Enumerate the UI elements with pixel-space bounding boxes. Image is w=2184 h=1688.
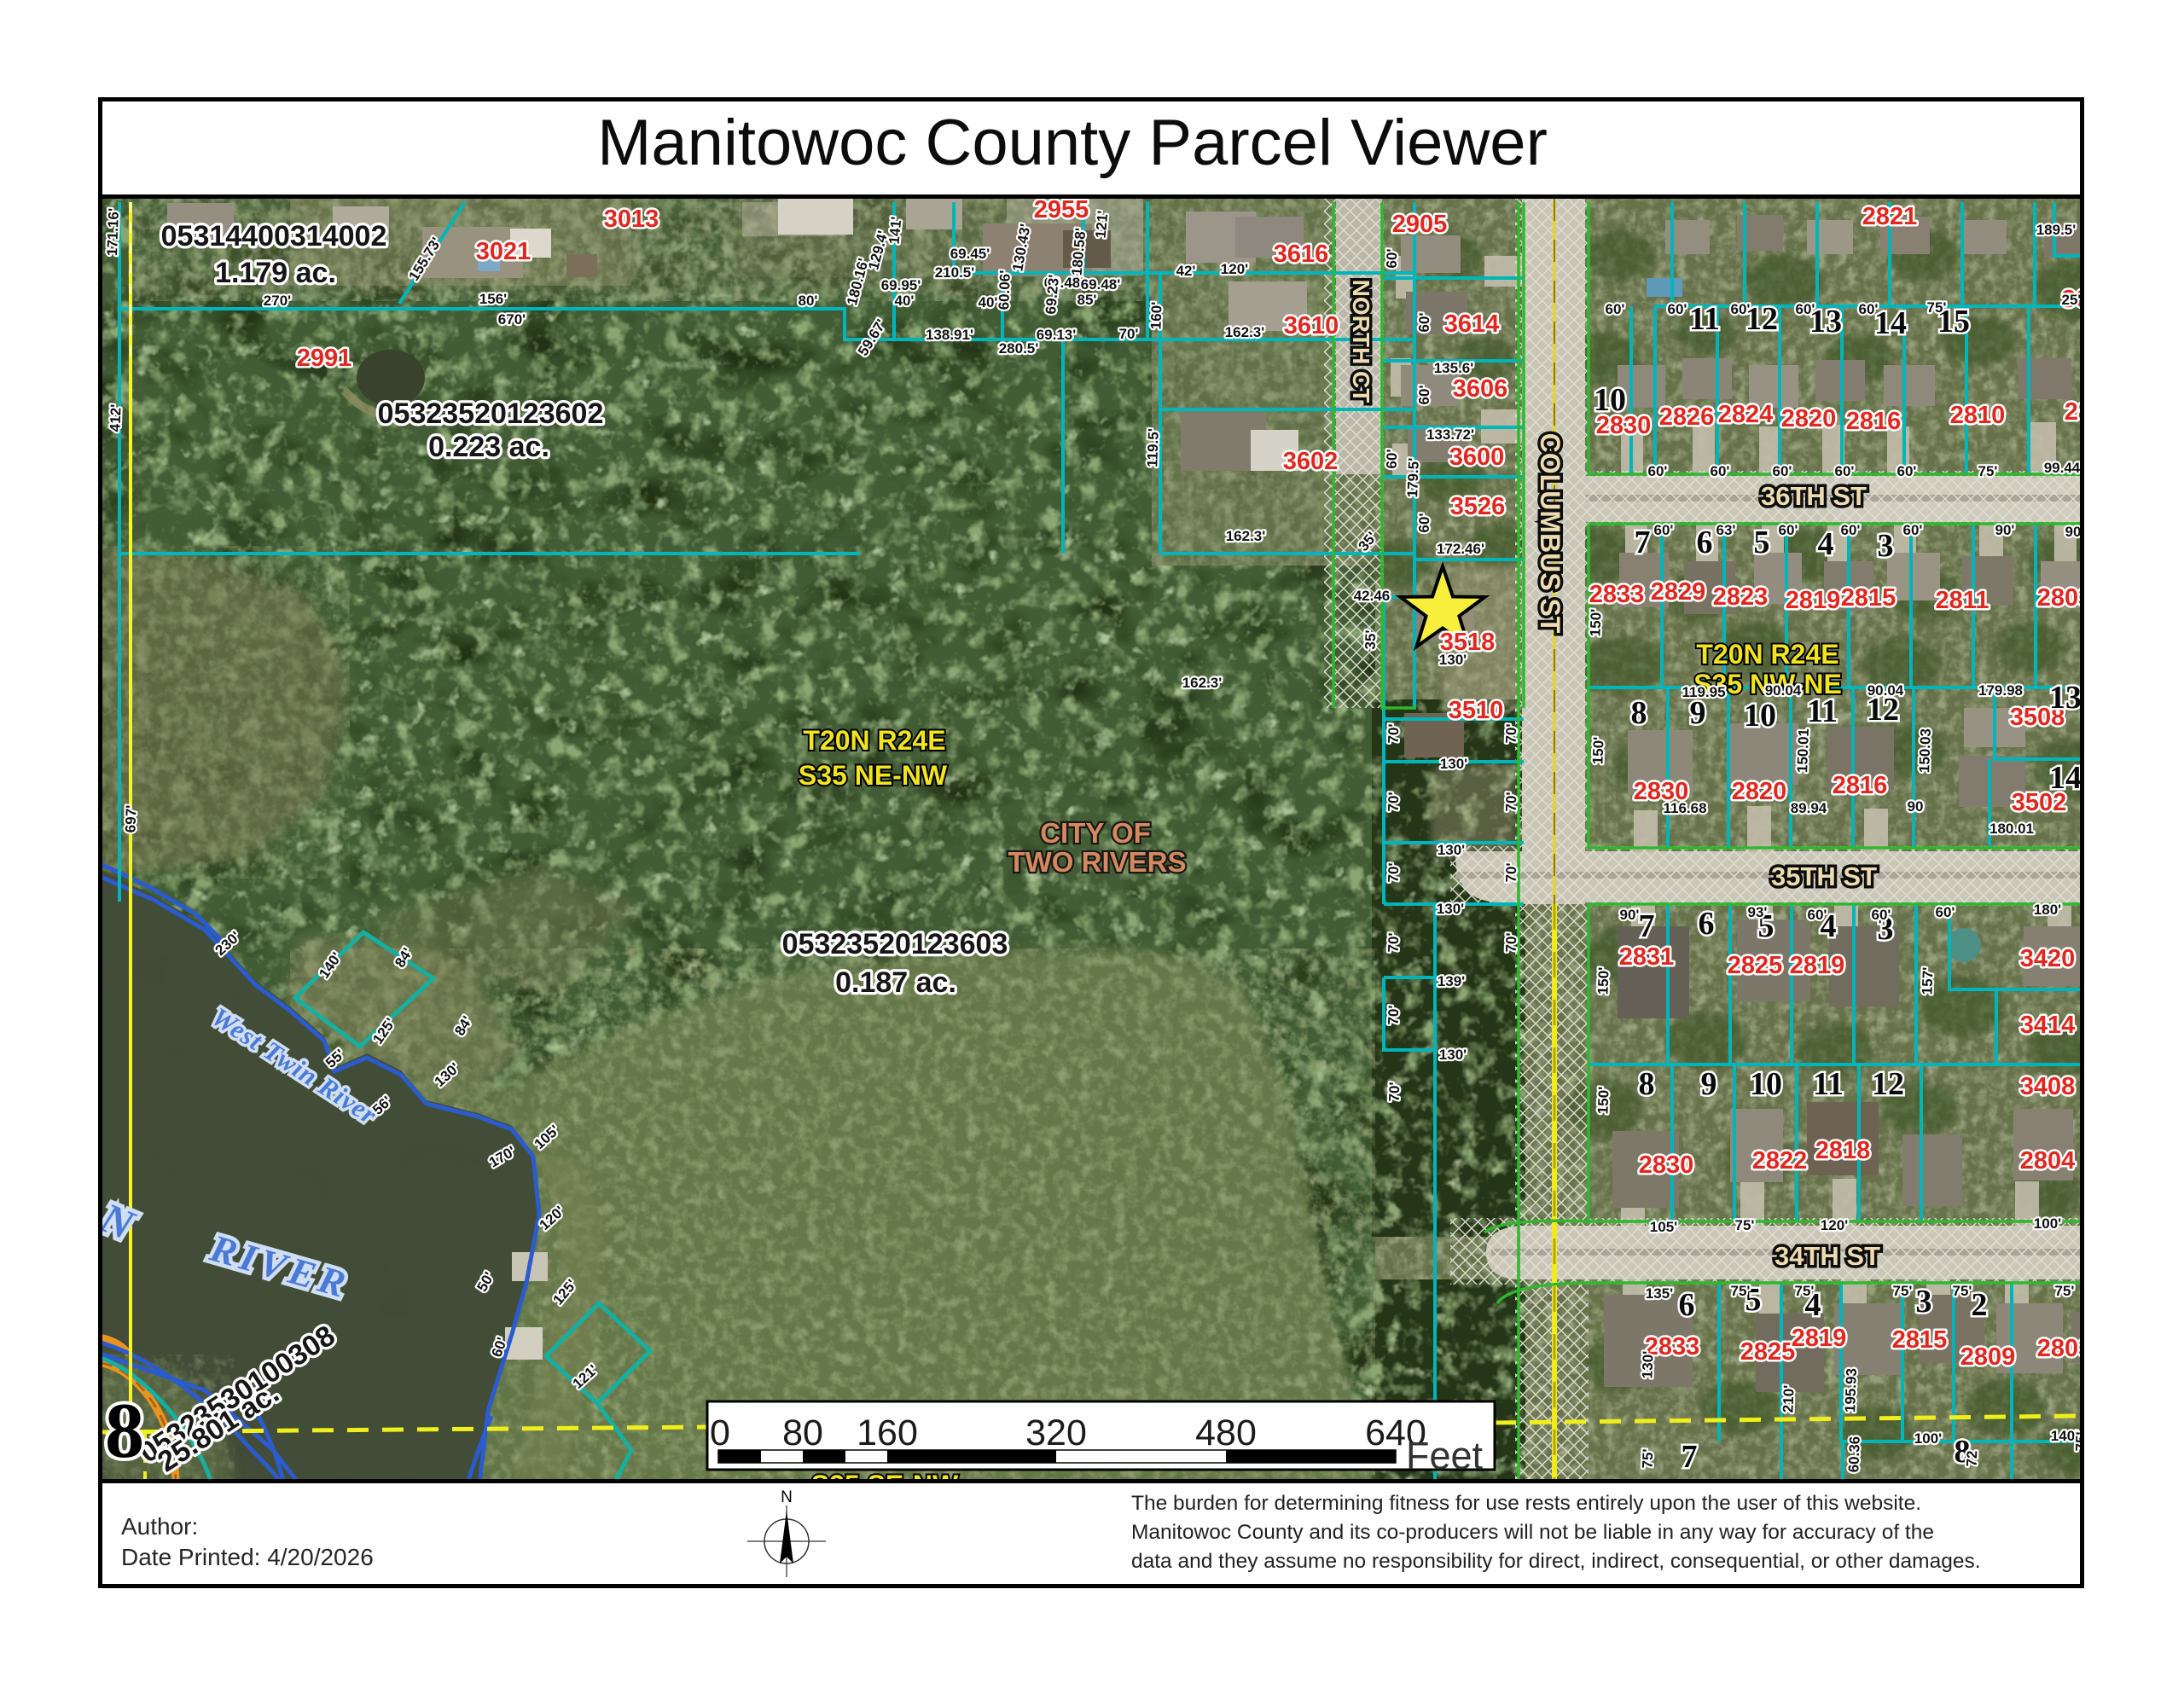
svg-text:150': 150' <box>1589 737 1606 765</box>
svg-text:0.187 ac.: 0.187 ac. <box>835 966 956 999</box>
svg-text:60': 60' <box>1711 463 1730 479</box>
svg-text:120': 120' <box>1821 1217 1848 1233</box>
svg-text:162.3': 162.3' <box>1226 528 1266 544</box>
svg-text:75': 75' <box>1795 1283 1815 1299</box>
svg-text:90.04: 90.04 <box>1867 682 1904 699</box>
svg-text:99.44': 99.44' <box>2044 460 2080 476</box>
svg-text:130': 130' <box>1437 901 1464 917</box>
svg-text:9: 9 <box>1690 695 1706 731</box>
svg-text:60': 60' <box>1606 301 1625 317</box>
svg-text:60': 60' <box>1416 312 1433 333</box>
svg-text:135.6': 135.6' <box>1434 360 1474 376</box>
svg-text:130': 130' <box>1438 842 1465 858</box>
svg-text:2815: 2815 <box>1841 584 1896 612</box>
svg-text:60': 60' <box>1841 522 1861 538</box>
svg-text:40': 40' <box>979 294 998 310</box>
svg-text:36TH ST: 36TH ST <box>1761 481 1867 511</box>
svg-text:2819: 2819 <box>1792 1325 1847 1352</box>
svg-text:13: 13 <box>2049 680 2080 716</box>
svg-text:3013: 3013 <box>604 206 659 233</box>
svg-text:75': 75' <box>1893 1283 1913 1299</box>
svg-text:105': 105' <box>1650 1219 1677 1235</box>
svg-text:8: 8 <box>1639 1066 1655 1102</box>
svg-text:75': 75' <box>1953 1283 1972 1299</box>
svg-text:2819: 2819 <box>1790 952 1845 979</box>
svg-text:6: 6 <box>1679 1287 1695 1323</box>
svg-text:180.01: 180.01 <box>1989 821 2034 837</box>
svg-text:2823: 2823 <box>1713 583 1769 611</box>
svg-text:6: 6 <box>1699 906 1715 942</box>
svg-text:80: 80 <box>782 1412 823 1453</box>
svg-text:2816: 2816 <box>1833 772 1888 799</box>
svg-text:2811: 2811 <box>1936 587 1989 614</box>
svg-text:412': 412' <box>107 404 124 432</box>
svg-text:05323520123603: 05323520123603 <box>782 928 1008 960</box>
svg-text:119.95: 119.95 <box>1682 684 1725 700</box>
svg-text:5: 5 <box>1754 525 1770 560</box>
svg-text:3510: 3510 <box>1449 697 1504 724</box>
svg-text:69.13': 69.13' <box>1037 327 1077 343</box>
svg-text:130': 130' <box>1639 1351 1656 1379</box>
svg-text:70': 70' <box>1503 932 1520 953</box>
svg-text:3: 3 <box>1916 1284 1932 1320</box>
svg-text:63': 63' <box>1716 522 1736 538</box>
svg-text:69.48': 69.48' <box>1081 276 1121 293</box>
svg-text:3420: 3420 <box>2020 945 2076 972</box>
svg-text:2825: 2825 <box>1728 952 1783 979</box>
svg-text:70': 70' <box>1385 723 1403 744</box>
svg-text:150.01: 150.01 <box>1794 728 1812 774</box>
svg-text:3610: 3610 <box>1284 312 1339 339</box>
svg-text:S35 SE-NW: S35 SE-NW <box>811 1470 959 1483</box>
svg-text:60': 60' <box>1416 385 1433 405</box>
svg-text:70': 70' <box>1503 792 1520 812</box>
svg-text:2809: 2809 <box>1960 1343 2016 1371</box>
svg-text:2803: 2803 <box>2037 584 2080 612</box>
svg-text:34TH ST: 34TH ST <box>1774 1241 1880 1271</box>
svg-text:70': 70' <box>1503 723 1520 744</box>
svg-text:2806: 2806 <box>2065 398 2080 426</box>
svg-text:320: 320 <box>1025 1412 1087 1453</box>
svg-text:4: 4 <box>1818 526 1834 562</box>
svg-text:2830: 2830 <box>1639 1151 1694 1179</box>
svg-text:7: 7 <box>1682 1439 1698 1475</box>
svg-text:90': 90' <box>2065 524 2080 540</box>
svg-text:75': 75' <box>2073 1431 2080 1452</box>
svg-text:179.5': 179.5' <box>1404 457 1422 497</box>
svg-text:2818: 2818 <box>1815 1137 1871 1164</box>
svg-text:133.72': 133.72' <box>1426 426 1474 443</box>
svg-text:3602: 3602 <box>1283 448 1339 475</box>
svg-text:75': 75' <box>1640 1448 1657 1469</box>
svg-text:S35 NE-NW: S35 NE-NW <box>799 760 948 791</box>
svg-text:14: 14 <box>1874 305 1907 341</box>
svg-text:70': 70' <box>1385 792 1403 812</box>
svg-text:70': 70' <box>1385 932 1403 953</box>
svg-text:160: 160 <box>857 1412 918 1453</box>
svg-text:100': 100' <box>1914 1430 1942 1447</box>
svg-text:05314400314002: 05314400314002 <box>161 220 387 252</box>
svg-text:130': 130' <box>1440 756 1467 772</box>
svg-text:75': 75' <box>1735 1217 1755 1233</box>
svg-text:670': 670' <box>498 311 526 328</box>
svg-text:70': 70' <box>1385 1005 1403 1025</box>
svg-text:120': 120' <box>1221 261 1248 277</box>
svg-text:160': 160' <box>1147 302 1165 330</box>
svg-text:2829: 2829 <box>1651 578 1706 606</box>
svg-text:150': 150' <box>1594 1087 1612 1115</box>
svg-text:3600: 3600 <box>1449 444 1505 471</box>
svg-text:8: 8 <box>105 1387 144 1474</box>
svg-text:12: 12 <box>1872 1066 1904 1102</box>
svg-text:T20N R24E: T20N R24E <box>803 725 945 756</box>
svg-text:172.46': 172.46' <box>1437 541 1484 557</box>
svg-text:60': 60' <box>1903 522 1923 538</box>
svg-text:60': 60' <box>1384 248 1401 269</box>
svg-text:100': 100' <box>2034 1215 2061 1232</box>
svg-text:35TH ST: 35TH ST <box>1771 861 1877 891</box>
svg-text:2824: 2824 <box>1718 401 1774 428</box>
svg-text:280.5': 280.5' <box>999 340 1039 357</box>
svg-text:195.93: 195.93 <box>1842 1368 1860 1413</box>
svg-text:3616: 3616 <box>1274 241 1329 268</box>
svg-text:162.3': 162.3' <box>1225 324 1265 340</box>
svg-text:2991: 2991 <box>297 345 352 372</box>
svg-text:270': 270' <box>264 293 291 309</box>
svg-text:60': 60' <box>1416 513 1433 533</box>
svg-text:90: 90 <box>1908 798 1924 815</box>
svg-text:90.04: 90.04 <box>1765 682 1802 699</box>
svg-text:70': 70' <box>1119 326 1139 342</box>
svg-text:60': 60' <box>1897 463 1917 479</box>
svg-text:2803: 2803 <box>2037 1335 2080 1362</box>
svg-text:2820: 2820 <box>1781 405 1837 432</box>
svg-text:69.45': 69.45' <box>950 246 990 262</box>
svg-text:69.95': 69.95' <box>881 277 921 293</box>
svg-text:2820: 2820 <box>1732 778 1787 805</box>
svg-text:119.5': 119.5' <box>1144 428 1162 467</box>
svg-text:60': 60' <box>1648 463 1668 479</box>
svg-text:9: 9 <box>1701 1066 1717 1102</box>
svg-text:189.5': 189.5' <box>2036 222 2077 238</box>
svg-text:7: 7 <box>1635 525 1651 560</box>
svg-text:2831: 2831 <box>1619 943 1675 971</box>
svg-text:171.16': 171.16' <box>104 208 122 257</box>
svg-text:70': 70' <box>1503 862 1520 883</box>
svg-text:89.94: 89.94 <box>1791 800 1827 816</box>
svg-text:162.3': 162.3' <box>1182 675 1223 691</box>
svg-text:80': 80' <box>799 293 818 309</box>
svg-text:85': 85' <box>1077 292 1097 308</box>
svg-text:14: 14 <box>2049 760 2080 796</box>
svg-text:150': 150' <box>1587 609 1604 637</box>
svg-text:3408: 3408 <box>2020 1073 2076 1100</box>
svg-text:72: 72 <box>1964 1450 1981 1467</box>
svg-text:179.98: 179.98 <box>1978 682 2023 699</box>
svg-text:60': 60' <box>1384 449 1401 469</box>
svg-text:11: 11 <box>1813 1066 1844 1102</box>
svg-text:10: 10 <box>1594 382 1626 418</box>
svg-text:60': 60' <box>1654 522 1674 538</box>
svg-text:CITY OF: CITY OF <box>1040 817 1151 849</box>
svg-text:70': 70' <box>1386 1082 1403 1102</box>
svg-text:3526: 3526 <box>1450 493 1506 520</box>
svg-text:2825: 2825 <box>1740 1338 1796 1366</box>
svg-text:11: 11 <box>1689 301 1720 337</box>
svg-text:156': 156' <box>479 291 507 307</box>
svg-text:N: N <box>781 1488 793 1506</box>
svg-text:2815: 2815 <box>1892 1326 1948 1354</box>
svg-text:10: 10 <box>1744 698 1776 734</box>
svg-text:05323520123602: 05323520123602 <box>378 397 604 430</box>
svg-text:2: 2 <box>1972 1287 1988 1323</box>
svg-text:2833: 2833 <box>1589 581 1645 608</box>
svg-text:130': 130' <box>1439 1047 1467 1063</box>
svg-text:2821: 2821 <box>1862 203 1918 230</box>
svg-text:75': 75' <box>1927 299 1947 316</box>
svg-text:12: 12 <box>1745 301 1778 337</box>
svg-text:210': 210' <box>1780 1385 1797 1413</box>
svg-text:75': 75' <box>2055 1283 2075 1299</box>
svg-text:75': 75' <box>1731 1283 1751 1299</box>
svg-text:6: 6 <box>1697 525 1713 560</box>
svg-text:60': 60' <box>1668 301 1687 317</box>
svg-text:42.46: 42.46 <box>1354 588 1391 604</box>
svg-text:60.06': 60.06' <box>996 270 1014 310</box>
svg-text:60': 60' <box>1779 522 1798 538</box>
svg-text:2822: 2822 <box>1752 1147 1808 1175</box>
svg-text:157': 157' <box>1919 967 1936 995</box>
svg-text:2955: 2955 <box>1034 199 1089 223</box>
svg-text:60': 60' <box>1936 904 1955 920</box>
svg-text:T20N R24E: T20N R24E <box>1696 639 1838 670</box>
svg-text:0: 0 <box>710 1412 730 1453</box>
svg-text:0.223 ac.: 0.223 ac. <box>428 431 549 463</box>
svg-text:116.68: 116.68 <box>1663 800 1706 816</box>
svg-text:75': 75' <box>1978 463 1998 479</box>
svg-text:130': 130' <box>1439 652 1467 668</box>
svg-text:70': 70' <box>1385 862 1403 883</box>
svg-text:60': 60' <box>1796 301 1815 317</box>
svg-text:10: 10 <box>1750 1066 1782 1102</box>
svg-text:40': 40' <box>895 293 915 309</box>
svg-text:150': 150' <box>1594 967 1612 995</box>
svg-text:TWO RIVERS: TWO RIVERS <box>1008 846 1186 878</box>
svg-text:138.91': 138.91' <box>926 327 973 343</box>
svg-text:60': 60' <box>1808 907 1827 923</box>
svg-text:2905: 2905 <box>1392 211 1448 238</box>
svg-text:60': 60' <box>1773 463 1792 479</box>
svg-text:697': 697' <box>122 805 139 833</box>
svg-text:60.36: 60.36 <box>1845 1436 1862 1472</box>
svg-text:3021: 3021 <box>476 238 531 265</box>
svg-text:135': 135' <box>1646 1285 1673 1302</box>
svg-text:3614: 3614 <box>1444 310 1500 338</box>
svg-text:2816: 2816 <box>1846 408 1902 435</box>
svg-text:1.179 ac.: 1.179 ac. <box>215 257 336 289</box>
svg-text:3606: 3606 <box>1453 375 1508 403</box>
svg-text:COLUMBUS ST: COLUMBUS ST <box>1535 433 1565 634</box>
svg-text:8: 8 <box>1631 695 1647 731</box>
svg-text:2819: 2819 <box>1786 587 1841 614</box>
svg-text:150.03: 150.03 <box>1916 728 1934 774</box>
svg-text:2810: 2810 <box>1950 402 2006 429</box>
svg-text:42': 42' <box>1176 263 1196 279</box>
svg-text:Feet: Feet <box>1406 1434 1484 1477</box>
svg-text:2826: 2826 <box>1659 403 1715 431</box>
svg-text:93': 93' <box>1748 904 1768 920</box>
svg-text:121': 121' <box>1093 210 1112 239</box>
svg-text:180': 180' <box>2034 902 2061 918</box>
svg-text:3414: 3414 <box>2020 1012 2076 1039</box>
svg-text:35': 35' <box>1362 629 1380 650</box>
svg-text:60': 60' <box>1731 301 1751 317</box>
svg-text:NORTH CT: NORTH CT <box>1348 280 1374 403</box>
svg-text:480: 480 <box>1195 1412 1257 1453</box>
svg-text:139': 139' <box>1438 973 1465 989</box>
svg-text:90': 90' <box>1995 522 2015 538</box>
svg-text:210.5': 210.5' <box>935 264 975 281</box>
svg-text:2804: 2804 <box>2020 1147 2076 1175</box>
svg-text:25': 25' <box>2062 292 2080 308</box>
svg-text:69.23': 69.23' <box>1043 274 1062 315</box>
svg-text:60': 60' <box>1872 907 1891 923</box>
svg-text:7: 7 <box>1639 908 1655 944</box>
svg-text:90': 90' <box>1620 907 1640 923</box>
svg-text:60': 60' <box>1835 463 1855 479</box>
svg-text:60': 60' <box>1859 301 1879 317</box>
svg-text:3: 3 <box>1878 528 1894 564</box>
